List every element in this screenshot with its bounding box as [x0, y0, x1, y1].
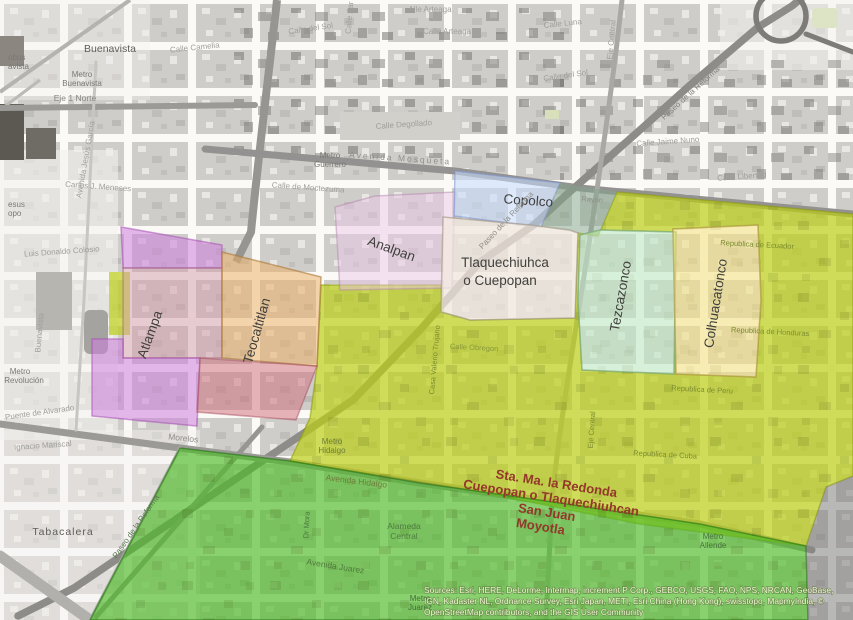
svg-text:Metro: Metro [320, 151, 341, 160]
svg-text:Alameda: Alameda [387, 521, 421, 531]
svg-text:Buenavista: Buenavista [84, 43, 136, 55]
svg-text:Rayon: Rayon [581, 194, 603, 204]
svg-text:Sources: Esri, HERE, DeLorme,: Sources: Esri, HERE, DeLorme, Intermap, … [424, 585, 833, 595]
svg-text:Dr Mora: Dr Mora [301, 510, 311, 538]
svg-text:Central: Central [390, 531, 418, 541]
svg-text:opo: opo [8, 209, 22, 218]
svg-text:Metro: Metro [10, 367, 31, 376]
svg-text:Metro: Metro [72, 70, 93, 79]
svg-text:Hidalgo: Hidalgo [318, 446, 346, 455]
svg-text:Metro: Metro [322, 437, 343, 446]
svg-text:Tlaquechiuhca: Tlaquechiuhca [461, 255, 549, 270]
svg-text:o Cuepopan: o Cuepopan [463, 273, 537, 288]
svg-text:OpenStreetMap contributors, an: OpenStreetMap contributors, and the GIS … [424, 607, 644, 617]
svg-text:IGN, Kadaster NL, Ordnance Sur: IGN, Kadaster NL, Ordnance Survey, Esri … [424, 596, 825, 606]
svg-text:Eje 1 Norte: Eje 1 Norte [54, 93, 97, 103]
svg-text:Revolución: Revolución [4, 376, 44, 385]
svg-text:Calle Arteaga: Calle Arteaga [423, 27, 472, 36]
svg-text:Buenavista: Buenavista [62, 79, 102, 88]
svg-text:Guerrero: Guerrero [314, 160, 347, 169]
svg-text:Allende: Allende [700, 541, 727, 550]
svg-text:Metro: Metro [703, 532, 724, 541]
svg-text:avista: avista [8, 62, 29, 71]
svg-text:Tabacalera: Tabacalera [32, 526, 93, 538]
svg-text:obus: obus [8, 53, 25, 62]
svg-text:esus: esus [8, 200, 25, 209]
svg-text:Alle Arteaga: Alle Arteaga [408, 5, 452, 14]
